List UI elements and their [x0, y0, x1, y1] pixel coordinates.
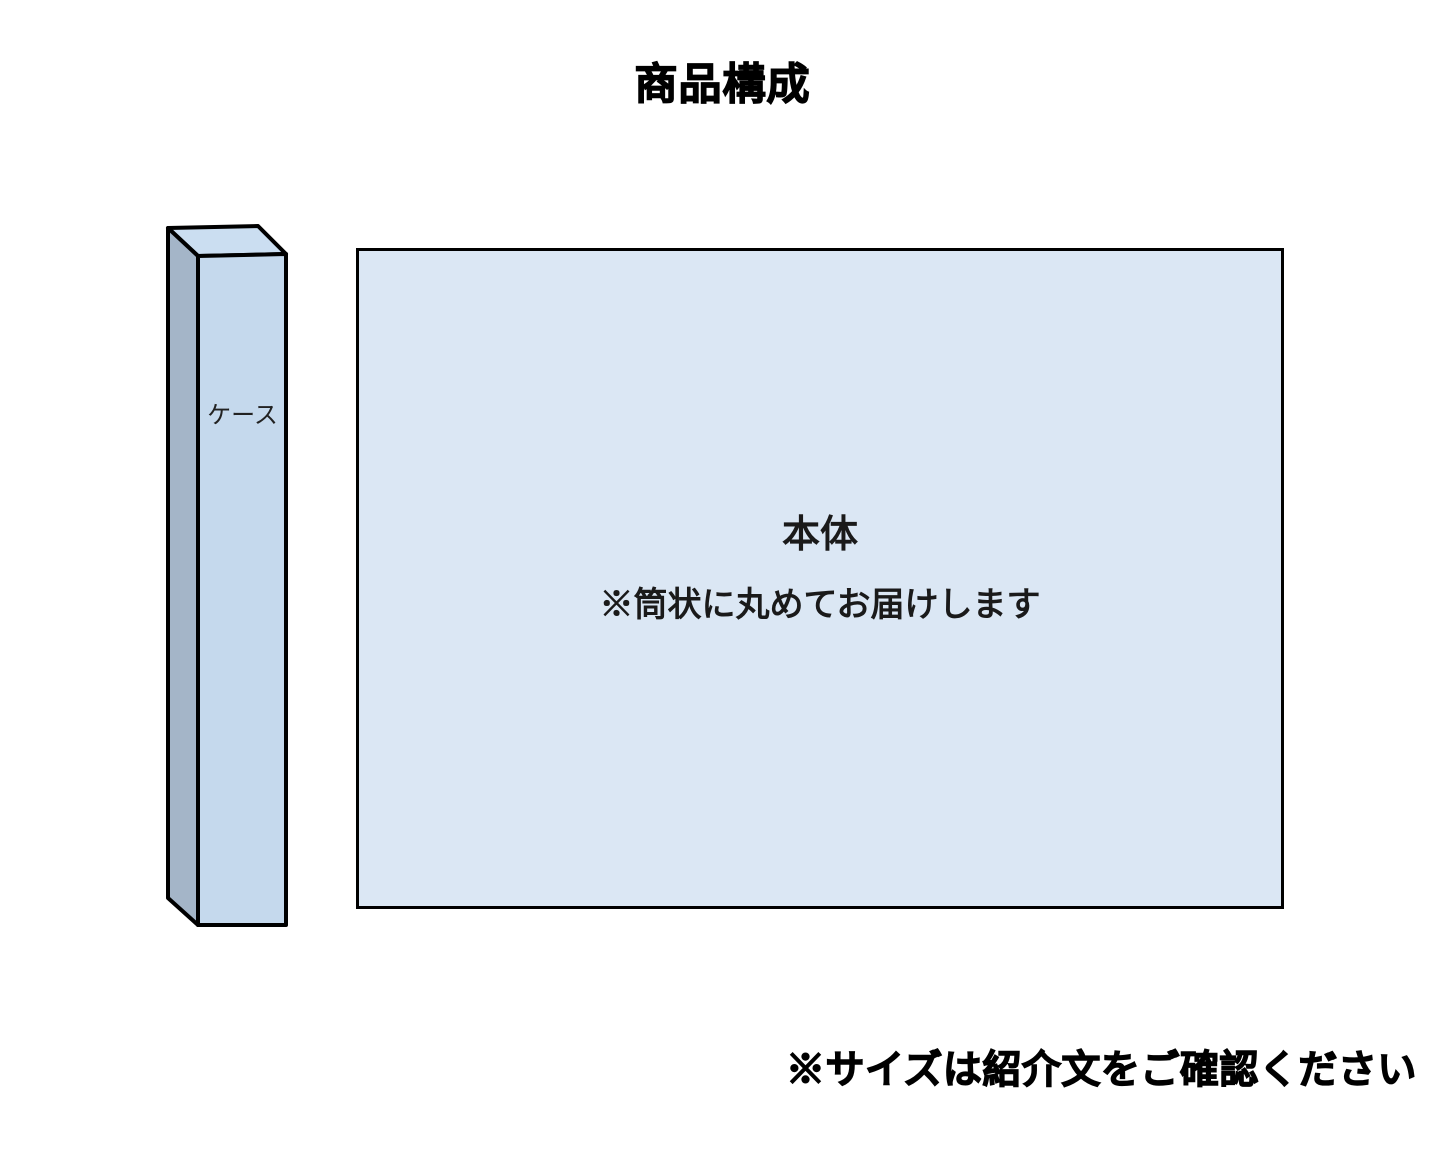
product-composition-diagram: 商品構成 ケース 本体 ※筒状に丸めてお届けします ※サイズは紹介文をご確認くだ… — [0, 0, 1445, 1156]
body-label: 本体 — [782, 513, 858, 559]
body-panel: 本体 ※筒状に丸めてお届けします — [356, 248, 1284, 909]
case-side-face — [168, 228, 198, 925]
case-front-face — [198, 254, 286, 925]
case-label: ケース — [199, 402, 286, 431]
footer-size-note: ※サイズは紹介文をご確認ください — [786, 1048, 1417, 1095]
body-rolled-note: ※筒状に丸めてお届けします — [600, 585, 1041, 626]
